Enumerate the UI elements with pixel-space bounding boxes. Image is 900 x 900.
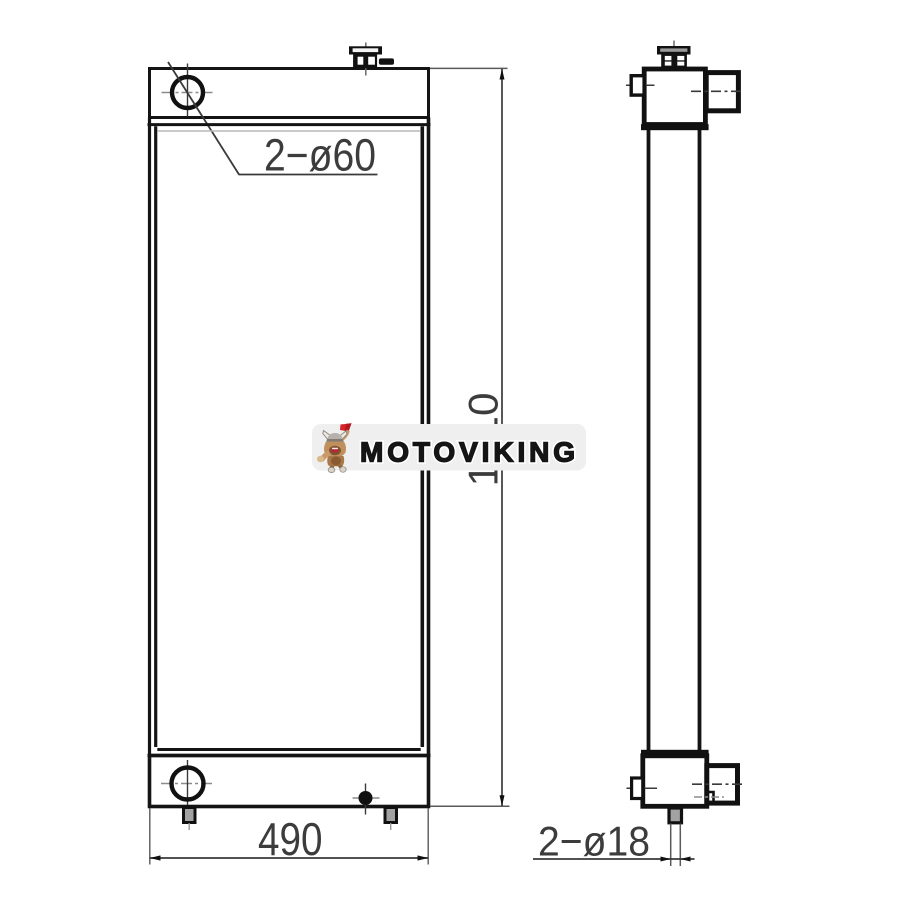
svg-text:MOTOVIKING: MOTOVIKING [360,437,579,468]
svg-text:2−ø60: 2−ø60 [264,130,376,181]
svg-text:490: 490 [258,813,323,865]
svg-text:2−ø18: 2−ø18 [538,818,650,865]
